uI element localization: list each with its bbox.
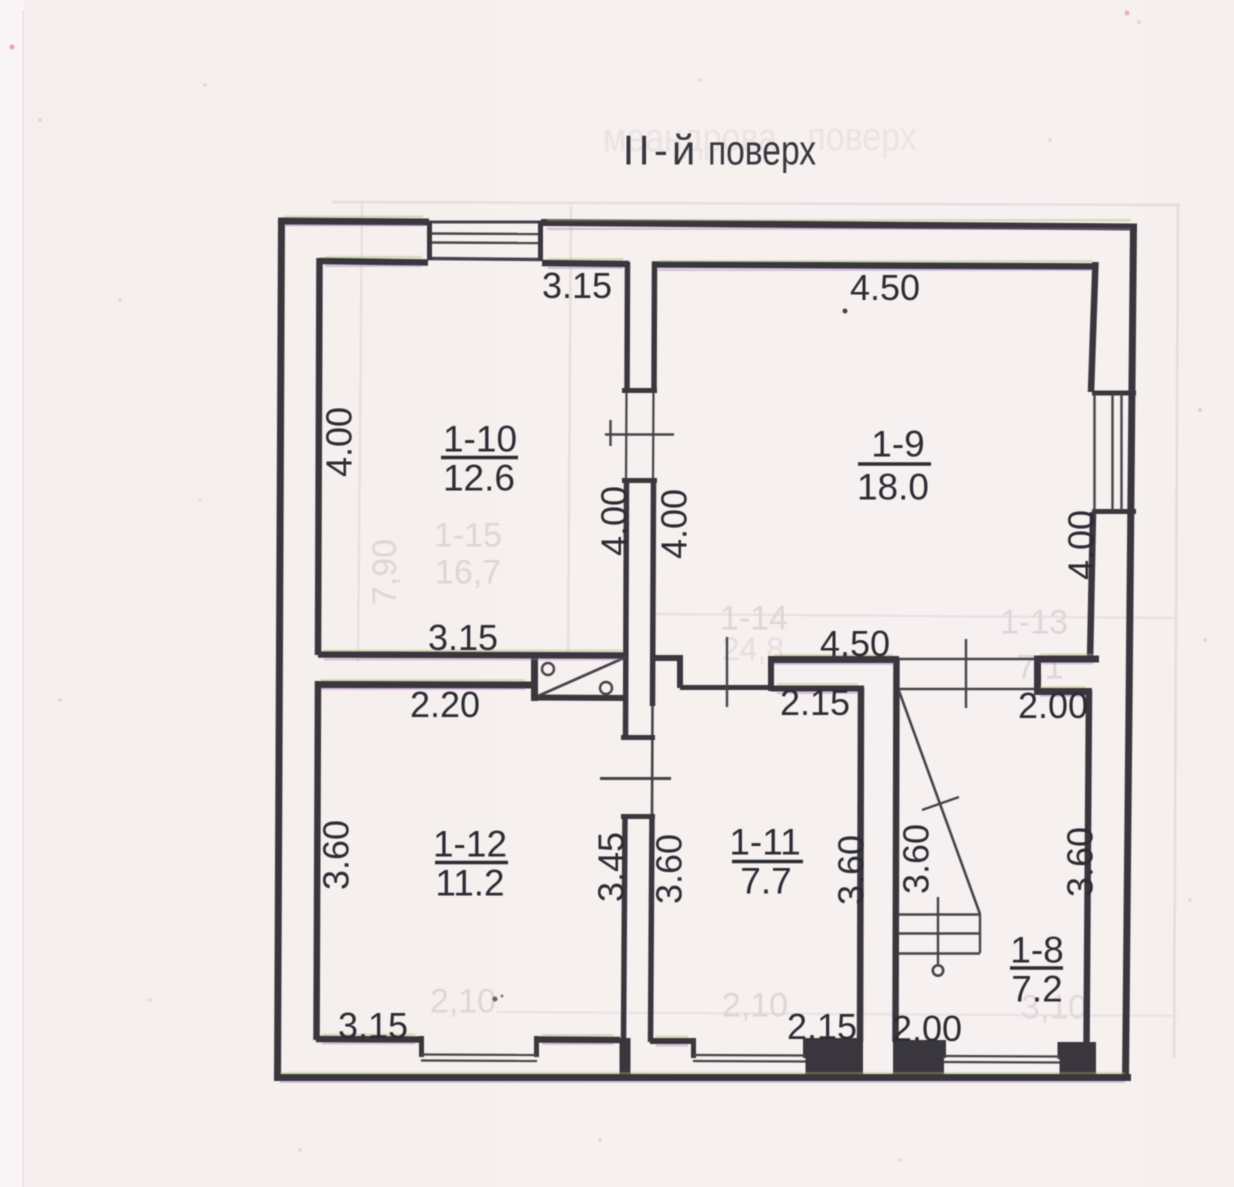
svg-text:4.50: 4.50: [820, 623, 890, 664]
svg-text:4.50: 4.50: [850, 267, 920, 308]
svg-text:4.00: 4.00: [319, 407, 360, 477]
svg-text:3.60: 3.60: [1060, 827, 1101, 897]
svg-text:1-9: 1-9: [871, 423, 924, 464]
svg-text:11.2: 11.2: [435, 862, 504, 903]
svg-text:1-8: 1-8: [1010, 929, 1063, 970]
svg-text:3.60: 3.60: [831, 835, 872, 905]
svg-text:2,10: 2,10: [430, 982, 496, 1020]
svg-text:1-13: 1-13: [1000, 603, 1068, 641]
svg-text:II-й: II-й: [623, 127, 700, 174]
svg-text:3.15: 3.15: [542, 265, 612, 306]
svg-text:2.20: 2.20: [410, 684, 480, 725]
svg-text:3.60: 3.60: [649, 834, 690, 904]
svg-text:1-10: 1-10: [443, 418, 517, 459]
svg-text:2.15: 2.15: [780, 682, 850, 723]
svg-text:поверх: поверх: [807, 113, 917, 158]
svg-text:4.00: 4.00: [654, 489, 695, 559]
svg-text:7.2: 7.2: [1011, 968, 1062, 1009]
svg-text:2.15: 2.15: [787, 1006, 857, 1047]
svg-text:12.6: 12.6: [443, 457, 515, 498]
svg-text:7,90: 7,90: [366, 539, 404, 605]
svg-text:3.60: 3.60: [316, 820, 357, 890]
svg-text:3.15: 3.15: [428, 617, 498, 658]
svg-text:4.00: 4.00: [594, 486, 635, 556]
svg-text:2,10: 2,10: [722, 986, 788, 1024]
svg-text:3.15: 3.15: [338, 1005, 408, 1046]
svg-text:18.0: 18.0: [857, 466, 929, 507]
svg-text:1-12: 1-12: [433, 823, 507, 864]
svg-text:16,7: 16,7: [435, 553, 501, 591]
svg-text:7.7: 7.7: [740, 860, 791, 901]
svg-text:2.00: 2.00: [1018, 685, 1088, 726]
svg-text:1-15: 1-15: [434, 516, 502, 554]
svg-text:3.45: 3.45: [591, 832, 632, 902]
svg-text:поверх: поверх: [708, 128, 816, 174]
svg-text:4.00: 4.00: [1061, 510, 1102, 580]
svg-text:3.60: 3.60: [896, 824, 937, 894]
svg-text:2.00: 2.00: [892, 1008, 962, 1049]
svg-text:1-11: 1-11: [729, 821, 800, 862]
